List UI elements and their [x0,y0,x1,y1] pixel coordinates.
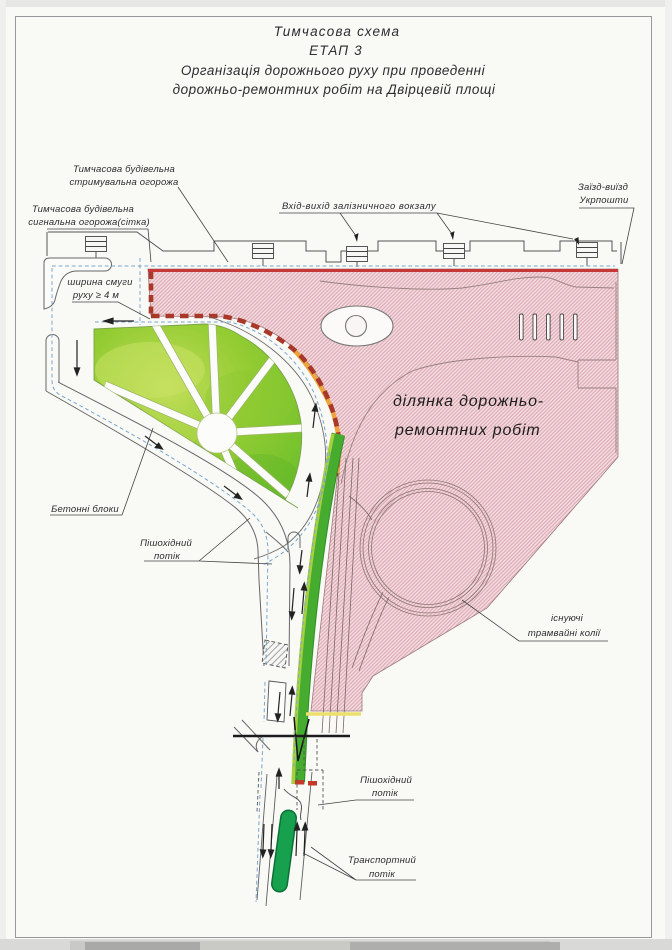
svg-text:Організація дорожнього руху пр: Організація дорожнього руху при проведен… [181,63,486,78]
svg-text:потік: потік [372,788,398,799]
svg-text:Тимчасова будівельна: Тимчасова будівельна [32,204,134,215]
svg-text:Пішохідний: Пішохідний [140,538,192,549]
svg-text:потік: потік [369,869,395,880]
svg-text:трамвайні колії: трамвайні колії [528,628,602,639]
svg-text:руху ≥ 4 м: руху ≥ 4 м [72,290,119,301]
svg-text:Укрпошти: Укрпошти [579,195,629,206]
svg-text:ремонтних робіт: ремонтних робіт [394,422,540,439]
svg-text:Пішохідний: Пішохідний [360,775,412,786]
svg-text:сигнальна огорожа(сітка): сигнальна огорожа(сітка) [28,217,150,228]
svg-text:ЕТАП 3: ЕТАП 3 [309,43,363,58]
svg-text:Бетонні блоки: Бетонні блоки [51,504,119,515]
svg-text:стримувальна огорожа: стримувальна огорожа [69,177,178,188]
svg-text:існуючі: існуючі [551,613,584,624]
svg-text:ділянка дорожньо-: ділянка дорожньо- [393,393,544,410]
svg-text:дорожньо-ремонтних робіт на Дв: дорожньо-ремонтних робіт на Двірцевій пл… [173,82,496,97]
svg-text:Тимчасова схема: Тимчасова схема [274,24,401,39]
svg-text:Тимчасова будівельна: Тимчасова будівельна [73,164,175,175]
svg-text:потік: потік [154,551,180,562]
svg-text:Заїзд-виїзд: Заїзд-виїзд [578,182,628,193]
svg-text:Транспортний: Транспортний [348,855,416,866]
svg-text:Вхід-вихід залізничного вокзал: Вхід-вихід залізничного вокзалу [282,201,437,212]
svg-text:ширина смуги: ширина смуги [67,277,133,288]
